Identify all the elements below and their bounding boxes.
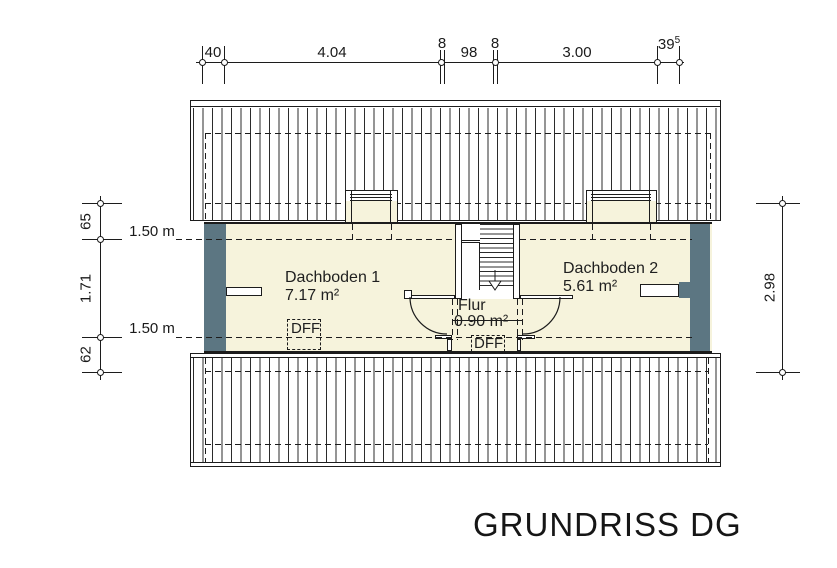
attic-interior: DFF DFF Dachboden 1 7.17 m² Dachboden 2 … bbox=[204, 222, 712, 353]
dim-label: 65 bbox=[78, 200, 95, 244]
room-name-dachboden-2: Dachboden 2 bbox=[563, 260, 658, 278]
floor-plan-canvas: 40 4.04 8 98 8 3.00 395 65 1.71 62 1.50 … bbox=[0, 0, 837, 568]
roof-overhang-dashed bbox=[205, 133, 206, 220]
roof-overhang-dashed bbox=[205, 133, 710, 134]
room-name-dachboden-1: Dachboden 1 bbox=[285, 269, 380, 287]
stair-wall-left bbox=[455, 224, 462, 299]
dim-extension-line bbox=[756, 372, 800, 373]
knee-wall-height-label: 1.50 m bbox=[129, 223, 175, 240]
door-leaf-dashed bbox=[522, 299, 523, 340]
dim-label: 8 bbox=[491, 35, 499, 52]
height-line-150-solid bbox=[462, 240, 480, 241]
dim-line bbox=[782, 196, 783, 380]
room-area-flur: 0.90 m² bbox=[454, 313, 508, 331]
roof-window-label: DFF bbox=[291, 320, 320, 337]
stair-railing-line bbox=[479, 242, 480, 290]
window-left bbox=[226, 287, 262, 296]
dim-tick bbox=[492, 59, 499, 66]
dim-tick bbox=[676, 59, 683, 66]
height-line-150-dashed bbox=[176, 239, 455, 240]
dormer-window-line bbox=[350, 197, 392, 198]
roof-overhang-dashed bbox=[708, 358, 709, 462]
dim-label: 98 bbox=[461, 44, 478, 61]
dim-extension-line bbox=[444, 50, 445, 84]
wall-stub bbox=[447, 339, 452, 351]
dim-label: 2.98 bbox=[762, 266, 779, 310]
dim-tick bbox=[438, 59, 445, 66]
roof-window-dff-1: DFF bbox=[287, 319, 321, 350]
dormer-wall-line bbox=[390, 191, 391, 222]
dim-tick bbox=[97, 236, 104, 243]
stair-wall-right bbox=[513, 224, 520, 299]
dim-tick bbox=[779, 200, 786, 207]
knee-wall-height-label: 1.50 m bbox=[129, 320, 175, 337]
wall-stub bbox=[517, 339, 521, 351]
height-line-150-dashed bbox=[176, 337, 692, 338]
dim-label: 8 bbox=[438, 35, 446, 52]
dormer-window-line bbox=[350, 194, 392, 195]
window-right bbox=[640, 284, 679, 297]
room-area-dachboden-2: 5.61 m² bbox=[563, 278, 617, 296]
dormer-wall-line bbox=[592, 191, 593, 222]
dim-label: 4.04 bbox=[317, 44, 346, 61]
roof-edge-line bbox=[191, 462, 720, 463]
dim-label: 1.71 bbox=[78, 267, 95, 311]
dim-tick bbox=[97, 334, 104, 341]
dormer-projection-dashed bbox=[391, 224, 392, 240]
roof-overhang-dashed bbox=[205, 371, 708, 372]
height-line-150-dashed bbox=[520, 239, 692, 240]
stair-landing-line bbox=[462, 242, 480, 243]
gable-wall-left bbox=[204, 224, 226, 351]
dim-label: 40 bbox=[205, 44, 222, 61]
roof-surface-south bbox=[190, 353, 721, 467]
dim-label: 62 bbox=[78, 333, 95, 377]
wall-pier-right bbox=[679, 282, 692, 298]
dormer-wall-line bbox=[351, 191, 352, 222]
roof-overhang-dashed bbox=[710, 133, 711, 220]
roof-overhang-dashed bbox=[205, 358, 206, 462]
dormer-projection-dashed bbox=[352, 224, 353, 240]
hallway-wall bbox=[408, 295, 455, 299]
dormer-1 bbox=[345, 190, 398, 223]
room-area-dachboden-1: 7.17 m² bbox=[285, 287, 339, 305]
wall-stub bbox=[404, 290, 412, 299]
roof-rafter-hatching bbox=[193, 358, 718, 462]
dormer-projection-dashed bbox=[592, 224, 593, 240]
dormer-wall-line bbox=[649, 191, 650, 222]
dormer-window-line bbox=[591, 200, 651, 201]
dim-label: 395 bbox=[658, 35, 680, 53]
dormer-2 bbox=[586, 190, 657, 223]
dormer-window-line bbox=[591, 194, 651, 195]
dim-tick bbox=[97, 369, 104, 376]
roof-overhang-dashed bbox=[205, 444, 708, 445]
dim-extension-line bbox=[756, 203, 800, 204]
stair-treads bbox=[480, 224, 513, 290]
dim-extension-line bbox=[493, 50, 494, 84]
dim-tick bbox=[779, 369, 786, 376]
stairwell bbox=[455, 224, 520, 299]
roof-edge-line bbox=[191, 106, 720, 107]
dim-tick bbox=[221, 59, 228, 66]
dim-line bbox=[100, 196, 101, 380]
dim-label: 3.00 bbox=[562, 44, 591, 61]
dormer-window-line bbox=[350, 200, 392, 201]
dim-tick bbox=[654, 59, 661, 66]
dormer-window-line bbox=[591, 197, 651, 198]
drawing-title: GRUNDRISS DG bbox=[473, 506, 743, 544]
gable-wall-right bbox=[690, 224, 710, 351]
dim-tick bbox=[97, 200, 104, 207]
dim-extension-line bbox=[497, 50, 498, 84]
dim-extension-line bbox=[440, 50, 441, 84]
dormer-projection-dashed bbox=[650, 224, 651, 240]
